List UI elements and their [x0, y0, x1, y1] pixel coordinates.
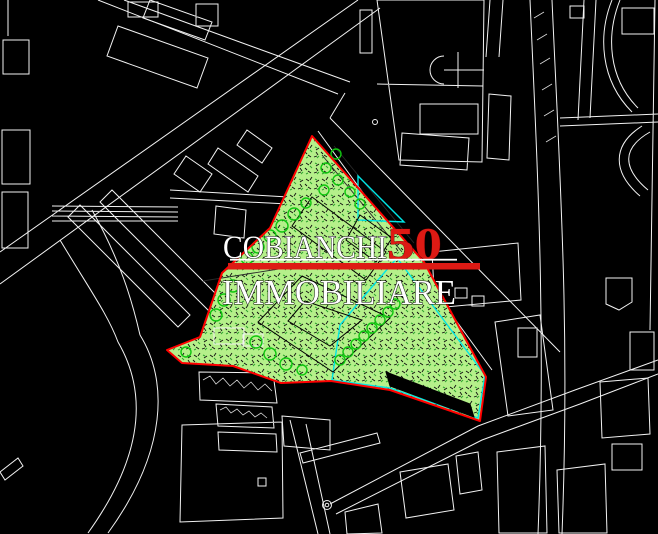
logo: COBIANCHI 50 IMMOBILIARE	[222, 218, 480, 312]
logo-line1: COBIANCHI	[223, 230, 387, 266]
site-plan-drawing: COBIANCHI 50 IMMOBILIARE	[0, 0, 658, 534]
cross-symbol	[430, 52, 484, 88]
logo-line2: IMMOBILIARE	[222, 273, 456, 312]
logo-rule-white	[230, 259, 457, 261]
logo-number: 50	[387, 218, 442, 269]
manhole-icon	[373, 120, 378, 125]
cad-canvas[interactable]: COBIANCHI 50 IMMOBILIARE	[0, 0, 658, 534]
logo-rule-red	[228, 263, 480, 270]
